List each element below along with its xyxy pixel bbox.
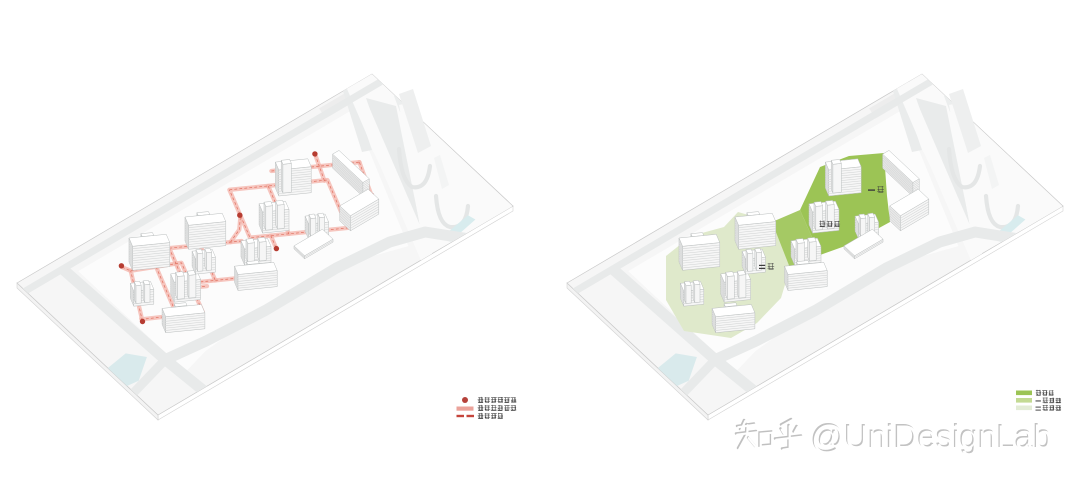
svg-text:@UniDesignLab: @UniDesignLab — [811, 418, 1052, 455]
